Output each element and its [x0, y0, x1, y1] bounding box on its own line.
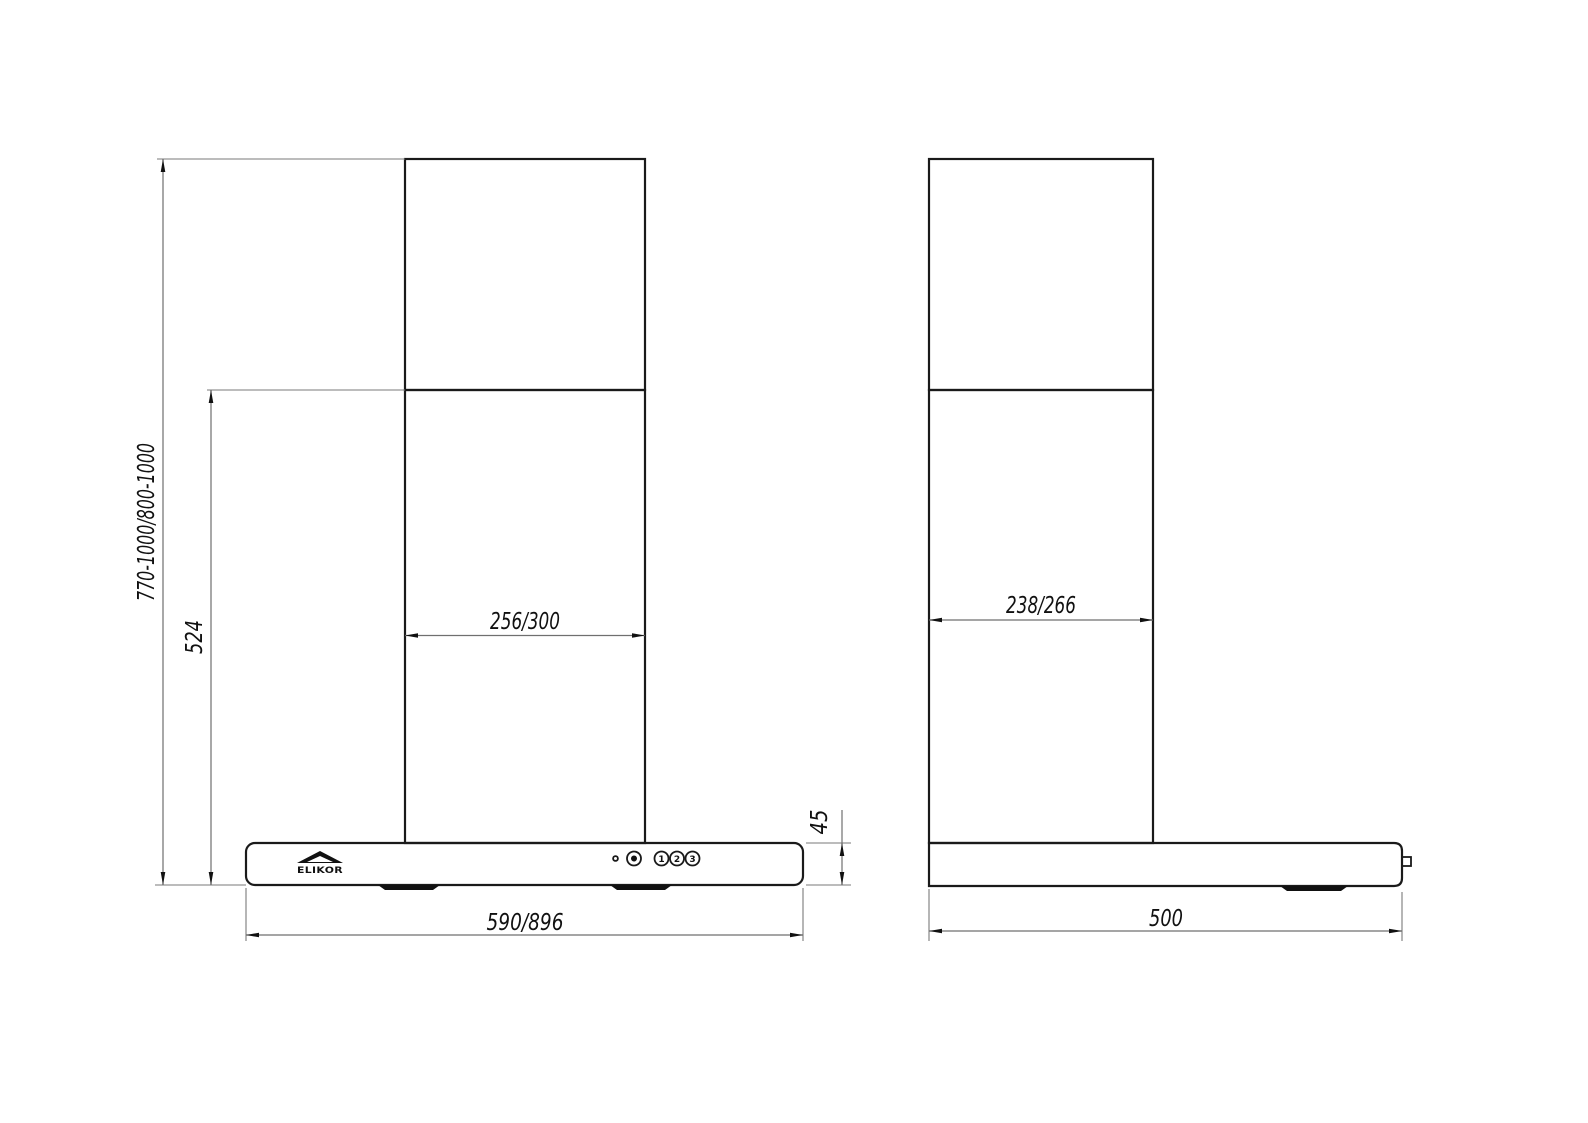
arrowhead-right-icon: [1389, 929, 1402, 934]
arrowhead-up-icon: [209, 390, 214, 403]
dim-chimney-depth-label: 238/266: [1006, 593, 1076, 619]
dim-chimney-height: 524: [182, 390, 213, 885]
arrowhead-left-icon: [405, 633, 418, 638]
dim-body-depth-label: 500: [1149, 906, 1183, 932]
front-foot-right: [610, 885, 672, 890]
indicator-led-icon: [613, 856, 618, 861]
side-foot: [1280, 886, 1348, 891]
dim-body-height: 45: [807, 810, 844, 886]
arrowhead-up-icon: [161, 159, 166, 172]
arrowhead-left-icon: [246, 933, 259, 938]
arrowhead-right-icon: [790, 933, 803, 938]
brand-logo-text: ELIKOR: [297, 866, 343, 876]
arrowhead-right-icon: [632, 633, 645, 638]
dim-total-height: 770-1000/800-1000: [134, 159, 165, 885]
hood-dimension-drawing: ELIKOR 1 2 3: [0, 0, 1588, 1123]
arrowhead-down-icon: [840, 872, 845, 885]
arrowhead-down-icon: [161, 872, 166, 885]
front-hood-body: [246, 843, 803, 885]
brand-logo: ELIKOR: [297, 851, 343, 876]
side-hood-body: [929, 843, 1402, 886]
speed-1-label: 1: [658, 855, 664, 865]
dim-chimney-width: 256/300: [405, 609, 645, 638]
arrowhead-left-icon: [929, 929, 942, 934]
speed-2-label: 2: [674, 855, 680, 865]
dim-body-height-label: 45: [807, 810, 833, 835]
drawing-sheet: ELIKOR 1 2 3: [0, 0, 1588, 1123]
side-view: 238/266 500: [929, 159, 1411, 941]
side-chimney-upper-section: [929, 159, 1153, 390]
speed-3-label: 3: [689, 855, 695, 865]
dim-total-height-label: 770-1000/800-1000: [134, 443, 160, 601]
arrowhead-down-icon: [209, 872, 214, 885]
dim-chimney-width-label: 256/300: [490, 609, 560, 635]
dim-body-width: 590/896: [246, 910, 803, 937]
side-body-tab: [1402, 857, 1411, 866]
arrowhead-up-icon: [840, 843, 845, 856]
dim-body-depth: 500: [929, 906, 1402, 933]
dim-chimney-depth: 238/266: [929, 593, 1153, 622]
control-panel: 1 2 3: [613, 852, 699, 866]
front-foot-left: [378, 885, 440, 890]
front-view: ELIKOR 1 2 3: [134, 159, 851, 941]
dim-chimney-height-label: 524: [182, 620, 208, 654]
light-button-glyph: [631, 856, 637, 862]
front-chimney-upper-section: [405, 159, 645, 390]
arrowhead-left-icon: [929, 618, 942, 623]
arrowhead-right-icon: [1140, 618, 1153, 623]
dim-body-width-label: 590/896: [487, 910, 564, 936]
